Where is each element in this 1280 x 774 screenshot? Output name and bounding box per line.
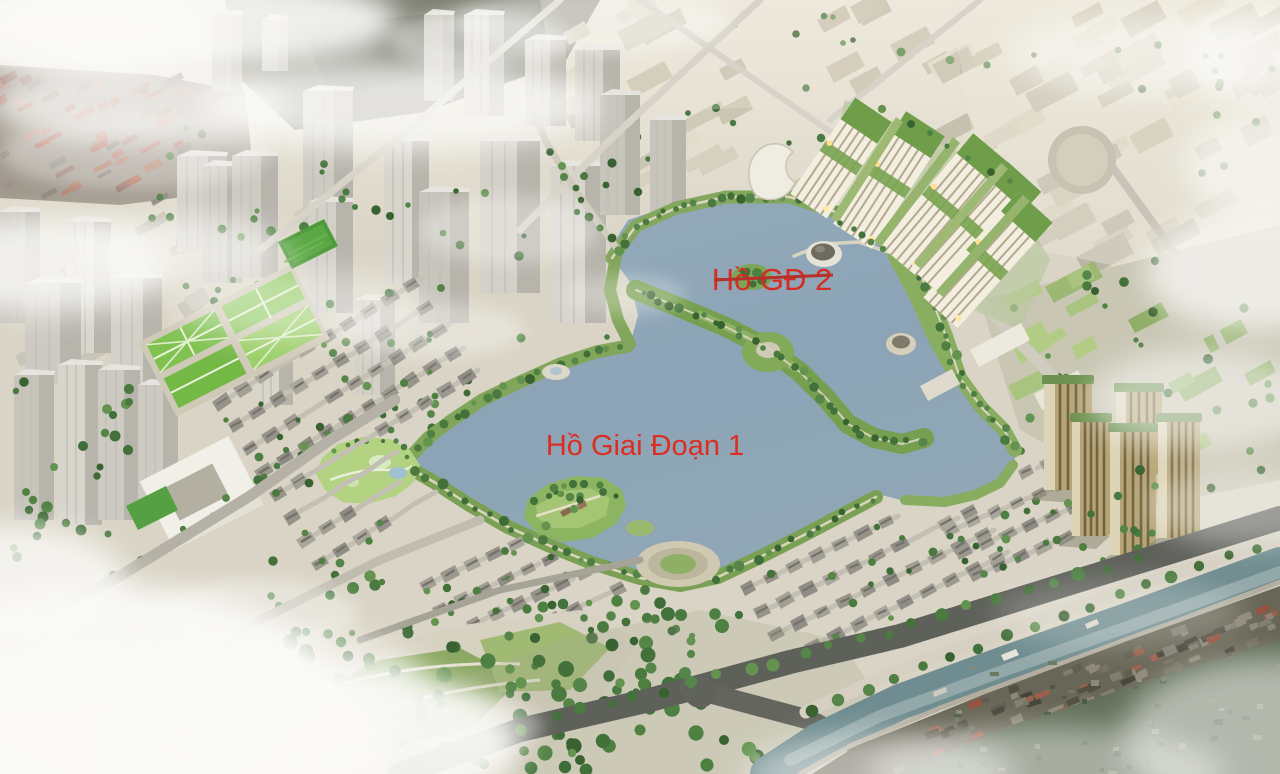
svg-text:Hồ Giai Đoạn 1: Hồ Giai Đoạn 1 bbox=[546, 430, 744, 462]
